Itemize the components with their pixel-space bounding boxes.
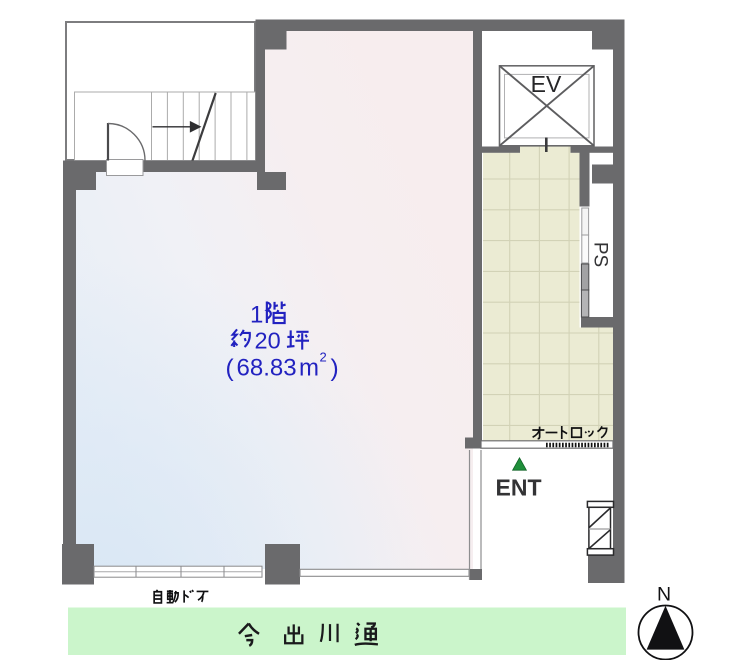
svg-text:(: ( [226, 355, 235, 382]
svg-text:N: N [657, 584, 671, 606]
svg-text:m: m [299, 355, 319, 382]
svg-text:EV: EV [531, 71, 562, 97]
svg-text:68.83: 68.83 [237, 355, 297, 382]
svg-text:20: 20 [255, 328, 281, 354]
svg-text:2: 2 [320, 350, 327, 365]
svg-text:PS: PS [589, 242, 610, 267]
svg-text:ENT: ENT [496, 475, 542, 501]
svg-text:): ) [331, 355, 339, 382]
svg-text:1: 1 [250, 302, 263, 329]
